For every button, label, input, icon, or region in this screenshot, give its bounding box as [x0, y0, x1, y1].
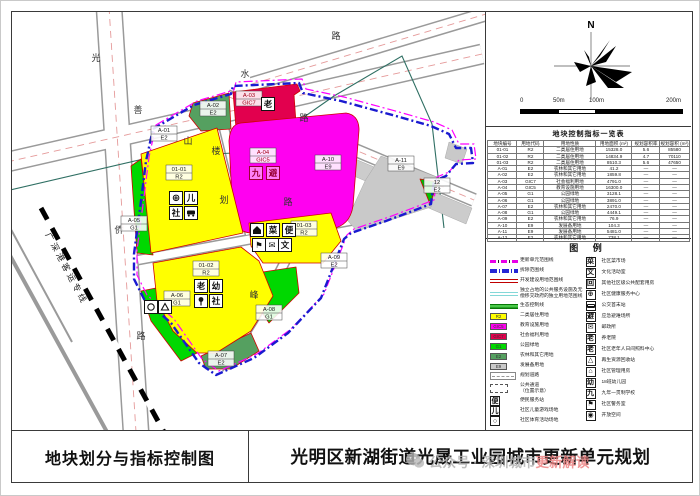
table-header: 规划容积 (m²): [660, 141, 689, 147]
legend-item: R2二类居住用地: [490, 311, 586, 321]
parcel-label: 01-02R2: [193, 261, 219, 277]
svg-text:G1: G1: [130, 226, 138, 232]
dashed-box-icon: [490, 384, 508, 393]
svg-text:01-02: 01-02: [199, 263, 214, 269]
legend-label: 拆除范围线: [520, 268, 544, 273]
sheet-frame: 光善侨路水路路山楼划路峰路广深港客运专线A-01E2A-02E2A-03GIC7…: [11, 11, 693, 483]
legend-swatch: [490, 292, 520, 296]
legend-item: 老养老院: [586, 333, 689, 344]
legend-section: 图 例 更新单元范围线拆除范围线开发建设用地范围线独立占地的公共服务设施及无偿移…: [486, 239, 691, 429]
legend-label: 社区菜市场: [602, 259, 626, 264]
legend-item: 便便民服务站: [490, 396, 586, 406]
legend-glyph-icon: △: [586, 356, 596, 366]
sports-ground-icon: [145, 301, 158, 314]
legend-item: 回其他社区级公共配套用房: [586, 278, 689, 289]
road-name-char: 水: [240, 68, 249, 79]
legend-glyph-icon: 老: [586, 345, 596, 355]
legend-swatch: 回: [586, 279, 602, 289]
legend-label: 社区健康服务中心: [602, 292, 640, 297]
parcel-label: A-08G1: [256, 305, 282, 321]
legend-item: E9发展备用地: [490, 361, 586, 371]
legend-swatch: [586, 301, 602, 311]
table-header: 用地代码: [517, 141, 544, 147]
legend-swatch: R2: [490, 313, 520, 320]
line-swatch: [490, 304, 518, 309]
title-bar: 地块划分与指标控制图 光明区新湖街道光晟工业园城市更新单元规划: [12, 430, 692, 482]
north-scale-section: N 0 50m 100m 200m: [486, 12, 691, 127]
legend-column-right: 菜社区菜市场文文化活动室回其他社区级公共配套用房⊕社区健康服务中心公交首末站避应…: [586, 256, 689, 426]
svg-text:E9: E9: [397, 166, 404, 172]
legend-item: △再生资源回收站: [586, 355, 689, 366]
bus-shape: [587, 304, 595, 308]
plan-sheet: 光善侨路水路路山楼划路峰路广深港客运专线A-01E2A-02E2A-03GIC7…: [0, 0, 700, 496]
svg-text:A-02: A-02: [207, 103, 219, 109]
color-swatch: G1: [490, 343, 507, 350]
legend-label: 再生资源回收站: [602, 358, 636, 363]
legend-item: ◉开放空间: [586, 410, 689, 421]
road-name-char: 光: [91, 52, 100, 63]
svg-text:避: 避: [269, 168, 278, 178]
legend-label: 邮政所: [602, 325, 616, 330]
legend-label: 应急避难场所: [602, 314, 631, 319]
school-icon: 九: [250, 167, 263, 180]
svg-text:文: 文: [281, 240, 290, 250]
svg-text:A-08: A-08: [263, 307, 275, 313]
legend-swatch: 儿: [490, 406, 520, 416]
legend-glyph-icon: 幼: [586, 378, 596, 388]
legend-swatch: GIC5: [490, 323, 520, 330]
legend-label: 文化活动室: [602, 270, 626, 275]
svg-text:儿: 儿: [186, 193, 196, 203]
legend-glyph-icon: 九: [586, 389, 596, 399]
legend-label: 社区儿童游戏场地: [520, 408, 558, 413]
svg-text:GIC5: GIC5: [256, 158, 270, 164]
legend-swatch: 老: [586, 334, 602, 344]
svg-text:E9: E9: [324, 165, 331, 171]
legend-swatch: [490, 269, 520, 273]
legend-label: 社会福利用地: [520, 333, 549, 338]
legend-glyph-icon: ⌂: [586, 367, 596, 377]
legend-swatch: E9: [490, 363, 520, 370]
legend-glyph-icon: 避: [586, 312, 596, 322]
convenience-icon: 便: [283, 224, 296, 237]
legend-label: 公交首末站: [602, 303, 626, 308]
parcel-label: A-05G1: [121, 216, 147, 232]
svg-text:G1: G1: [265, 315, 273, 321]
legend-item: GIC5教育设施用地: [490, 321, 586, 331]
community-icon: 社: [210, 295, 223, 308]
project-name: 光明区新湖街道光晟工业园城市更新单元规划: [249, 431, 692, 482]
legend-swatch: 老: [586, 345, 602, 355]
svg-text:A-01: A-01: [158, 128, 170, 134]
legend-label: 公共通道（位置示意）: [520, 383, 549, 394]
table-header: 用地面积 (m²): [596, 141, 632, 147]
svg-text:九: 九: [251, 168, 261, 178]
legend-item: 公共通道（位置示意）: [490, 381, 586, 396]
legend-swatch: 九: [586, 389, 602, 399]
line-swatch: [490, 260, 518, 263]
plot-indicator-table[interactable]: 地块编号用地代码用地性质用地面积 (m²)规划容积率规划容积 (m²) 01-0…: [487, 140, 689, 242]
svg-text:12: 12: [434, 180, 440, 186]
legend-item: GIC7社会福利用地: [490, 331, 586, 341]
svg-text:A-09: A-09: [328, 255, 340, 261]
legend-glyph-icon: 老: [586, 334, 596, 344]
legend-glyph-icon: ◉: [586, 411, 596, 421]
legend-swatch: ⚑: [586, 400, 602, 410]
legend-label: 更新单元范围线: [520, 258, 554, 263]
svg-text:幼: 幼: [212, 281, 221, 291]
table-title: 地块控制指标一览表: [486, 129, 691, 139]
legend-label: 社区体育活动场地: [520, 418, 558, 423]
legend-item: 儿社区儿童游戏场地: [490, 406, 586, 416]
color-swatch: E2: [490, 353, 507, 360]
legend-item: 文文化活动室: [586, 267, 689, 278]
table-header: 规划容积率: [632, 141, 660, 147]
legend-swatch: [490, 372, 520, 380]
svg-text:A-06: A-06: [171, 293, 183, 299]
legend-glyph-icon: 回: [586, 279, 596, 289]
legend-swatch: 幼: [586, 378, 602, 388]
legend-label: 18班幼儿园: [602, 380, 627, 385]
north-arrow: N: [546, 16, 636, 102]
legend-swatch: [490, 304, 520, 309]
north-label: N: [587, 20, 594, 31]
parcel-label: A-09E2: [321, 253, 347, 269]
svg-text:社: 社: [211, 296, 221, 306]
legend-swatch: [490, 384, 520, 393]
svg-text:✉: ✉: [268, 240, 275, 250]
svg-text:G1: G1: [173, 301, 181, 307]
indicator-table-section: 地块控制指标一览表 地块编号用地代码用地性质用地面积 (m²)规划容积率规划容积…: [486, 127, 691, 239]
legend-glyph-icon: ⊕: [586, 290, 596, 300]
svg-text:GIC7: GIC7: [242, 101, 256, 107]
planning-map[interactable]: 光善侨路水路路山楼划路峰路广深港客运专线A-01E2A-02E2A-03GIC7…: [12, 12, 485, 430]
parcel-label: A-10E9: [315, 155, 341, 171]
legend-swatch: GIC7: [490, 333, 520, 340]
legend-swatch: [490, 279, 520, 283]
market-icon: 菜: [267, 224, 280, 237]
parcel-label: 01-01R2: [166, 165, 192, 181]
parcel-label: 12E2: [424, 178, 450, 194]
svg-text:E2: E2: [433, 188, 440, 194]
legend-item: 开发建设用地范围线: [490, 276, 586, 286]
line-swatch: [490, 292, 518, 296]
legend-glyph-icon: 文: [586, 268, 596, 278]
legend-glyph-icon: 菜: [586, 257, 596, 267]
legend-item: 九九年一贯制学校: [586, 388, 689, 399]
legend-item: 规划道路: [490, 371, 586, 381]
shelter-icon: 避: [267, 167, 280, 180]
svg-text:R2: R2: [175, 175, 182, 181]
legend-swatch: [490, 260, 520, 263]
legend-label: 九年一贯制学校: [602, 391, 636, 396]
road-name-char: 善: [133, 104, 142, 115]
svg-text:社: 社: [171, 208, 181, 218]
post-icon: ✉: [266, 239, 279, 252]
svg-text:E2: E2: [209, 111, 216, 117]
children-play-icon: 儿: [185, 192, 198, 205]
legend-item: 独立占地的公共服务设施及无偿移交政府的独立用地范围线: [490, 286, 586, 301]
legend-label: 公园绿地: [520, 343, 539, 348]
legend-item: 拆除范围线: [490, 266, 586, 276]
svg-text:A-04: A-04: [257, 150, 270, 156]
legend-glyph-icon: 儿: [490, 406, 500, 416]
legend-item: 菜社区菜市场: [586, 256, 689, 267]
legend-swatch: ⌂: [586, 367, 602, 377]
legend-item: 幼18班幼儿园: [586, 377, 689, 388]
legend-swatch: ⊕: [586, 290, 602, 300]
legend-item: ○社区体育活动场地: [490, 416, 586, 426]
road-name-char: 峰: [249, 290, 258, 300]
legend-swatch: 菜: [586, 257, 602, 267]
svg-text:⊕: ⊕: [172, 193, 180, 204]
legend-label: 养老院: [602, 336, 616, 341]
pin-icon: [195, 295, 208, 308]
legend-label: 二类居住用地: [520, 313, 549, 318]
line-swatch: [490, 269, 518, 273]
scale-labels: 0 50m 100m 200m: [520, 98, 683, 106]
svg-text:E2: E2: [217, 361, 224, 367]
svg-text:E2: E2: [330, 263, 337, 269]
legend-item: G1公园绿地: [490, 341, 586, 351]
svg-text:A-07: A-07: [215, 353, 227, 359]
svg-text:便: 便: [285, 225, 294, 235]
legend-label: 规划道路: [520, 373, 539, 378]
police-icon: ⚑: [253, 239, 266, 252]
legend-label: 教育设施用地: [520, 323, 549, 328]
svg-text:E2: E2: [160, 136, 167, 142]
legend-item: 更新单元范围线: [490, 256, 586, 266]
legend-label: 农林和其它用地: [520, 353, 554, 358]
parcel-label: A-01E2: [151, 126, 177, 142]
legend-label: 开发建设用地范围线: [520, 278, 563, 283]
legend-swatch: 便: [490, 396, 520, 406]
legend-label: 独立占地的公共服务设施及无偿移交政府的独立用地范围线: [520, 288, 582, 299]
road-name-char: 路: [331, 30, 340, 41]
color-swatch: E9: [490, 363, 507, 370]
svg-text:R2: R2: [300, 231, 307, 237]
svg-text:老: 老: [196, 281, 206, 291]
management-house-icon: [251, 224, 264, 237]
svg-text:A-05: A-05: [128, 218, 140, 224]
kindergarten-icon: 幼: [210, 280, 223, 293]
road-name-char: 路: [299, 112, 308, 123]
svg-text:01-01: 01-01: [172, 167, 187, 173]
legend-glyph-icon: ○: [490, 416, 500, 426]
elderly-icon: 老: [195, 280, 208, 293]
parcel-label: A-07E2: [208, 351, 234, 367]
bus-icon: [586, 301, 596, 311]
health-center-icon: ⊕: [170, 192, 183, 205]
parcel-A04: [229, 113, 359, 233]
legend-item: ⚑社区警务室: [586, 399, 689, 410]
road-name-char: 路: [283, 196, 292, 207]
legend-label: 社区老年人日间照料中心: [602, 347, 655, 352]
community-icon: 社: [170, 207, 183, 220]
legend-label: 社区警务室: [602, 402, 626, 407]
legend-item: 老社区老年人日间照料中心: [586, 344, 689, 355]
legend-item: ⊕社区健康服务中心: [586, 289, 689, 300]
parcel-label: A-11E9: [388, 156, 414, 172]
road-name-char: 楼: [211, 145, 220, 156]
legend-label: 社区管理用房: [602, 369, 631, 374]
svg-text:菜: 菜: [268, 225, 278, 235]
color-swatch: R2: [490, 313, 507, 320]
legend-glyph-icon: 便: [490, 396, 500, 406]
road-name-char: 山: [183, 136, 192, 146]
legend-swatch: ○: [490, 416, 520, 426]
elderly-icon: 老: [262, 98, 275, 111]
culture-icon: 文: [279, 239, 292, 252]
sheet-name: 地块划分与指标控制图: [12, 431, 249, 482]
legend-swatch: E2: [490, 353, 520, 360]
legend-item: 公交首末站: [586, 300, 689, 311]
legend-label: 其他社区级公共配套用房: [602, 281, 655, 286]
svg-text:A-11: A-11: [395, 158, 407, 164]
legend-swatch: ✉: [586, 323, 602, 333]
svg-text:A-10: A-10: [322, 157, 334, 163]
legend-swatch: △: [586, 356, 602, 366]
scale-bar: [520, 109, 683, 114]
legend-label: 发展备用地: [520, 363, 544, 368]
color-swatch: GIC5: [490, 323, 507, 330]
svg-text:A-03: A-03: [243, 93, 255, 99]
legend-label: 开放空间: [602, 413, 621, 418]
recycle-icon: [159, 301, 172, 314]
legend-title: 图 例: [486, 239, 691, 254]
legend-swatch: G1: [490, 343, 520, 350]
road-name-char: 路: [136, 330, 145, 341]
svg-text:01-03: 01-03: [297, 223, 312, 229]
parcel-label: A-03GIC7: [236, 91, 262, 107]
legend-glyph-icon: ⚑: [586, 400, 596, 410]
legend-label: 生态控制线: [520, 303, 544, 308]
bus-terminus-icon: [185, 207, 198, 220]
road-name-char: 划: [219, 194, 228, 205]
legend-column-left: 更新单元范围线拆除范围线开发建设用地范围线独立占地的公共服务设施及无偿移交政府的…: [490, 256, 586, 426]
legend-swatch: ◉: [586, 411, 602, 421]
svg-text:⚑: ⚑: [255, 240, 263, 250]
legend-swatch: 避: [586, 312, 602, 322]
svg-text:老: 老: [263, 99, 273, 109]
legend-item: 避应急避难场所: [586, 311, 689, 322]
svg-text:R2: R2: [202, 271, 209, 277]
parcel-label: A-02E2: [200, 101, 226, 117]
color-swatch: GIC7: [490, 333, 507, 340]
legend-glyph-icon: ✉: [586, 323, 596, 333]
legend-item: ⌂社区管理用房: [586, 366, 689, 377]
legend-swatch: 文: [586, 268, 602, 278]
road-icon: [490, 372, 516, 380]
parcel-label: A-04GIC5: [250, 148, 276, 164]
legend-item: ✉邮政所: [586, 322, 689, 333]
info-panel: N 0 50m 100m 200m 地块控制指标一览表: [485, 12, 691, 430]
legend-item: 生态控制线: [490, 301, 586, 311]
legend-item: E2农林和其它用地: [490, 351, 586, 361]
legend-label: 便民服务站: [520, 398, 544, 403]
line-swatch: [490, 279, 518, 283]
